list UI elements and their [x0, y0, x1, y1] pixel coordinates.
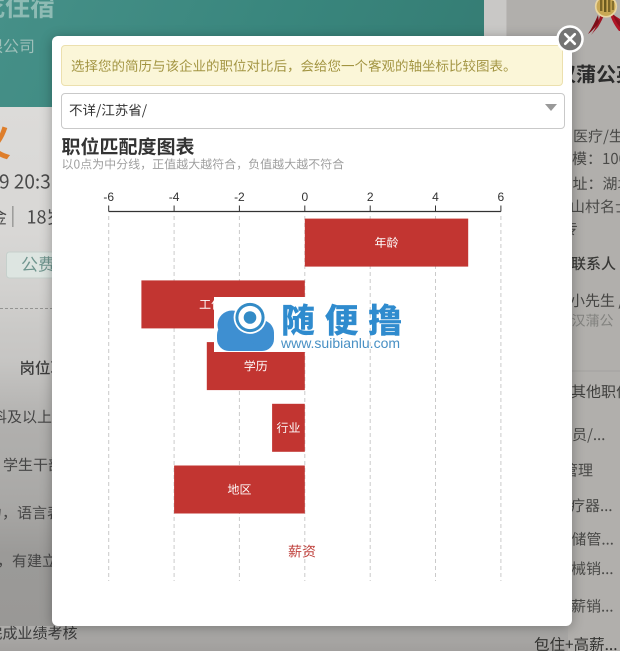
svg-text:0: 0 — [301, 190, 308, 204]
svg-text:-4: -4 — [169, 190, 180, 204]
svg-text:www.suibianlu.com: www.suibianlu.com — [280, 335, 400, 351]
svg-text:2: 2 — [367, 190, 374, 204]
svg-text:6: 6 — [498, 190, 505, 204]
svg-text:-2: -2 — [234, 190, 245, 204]
svg-text:4: 4 — [432, 190, 439, 204]
svg-text:-6: -6 — [103, 190, 114, 204]
